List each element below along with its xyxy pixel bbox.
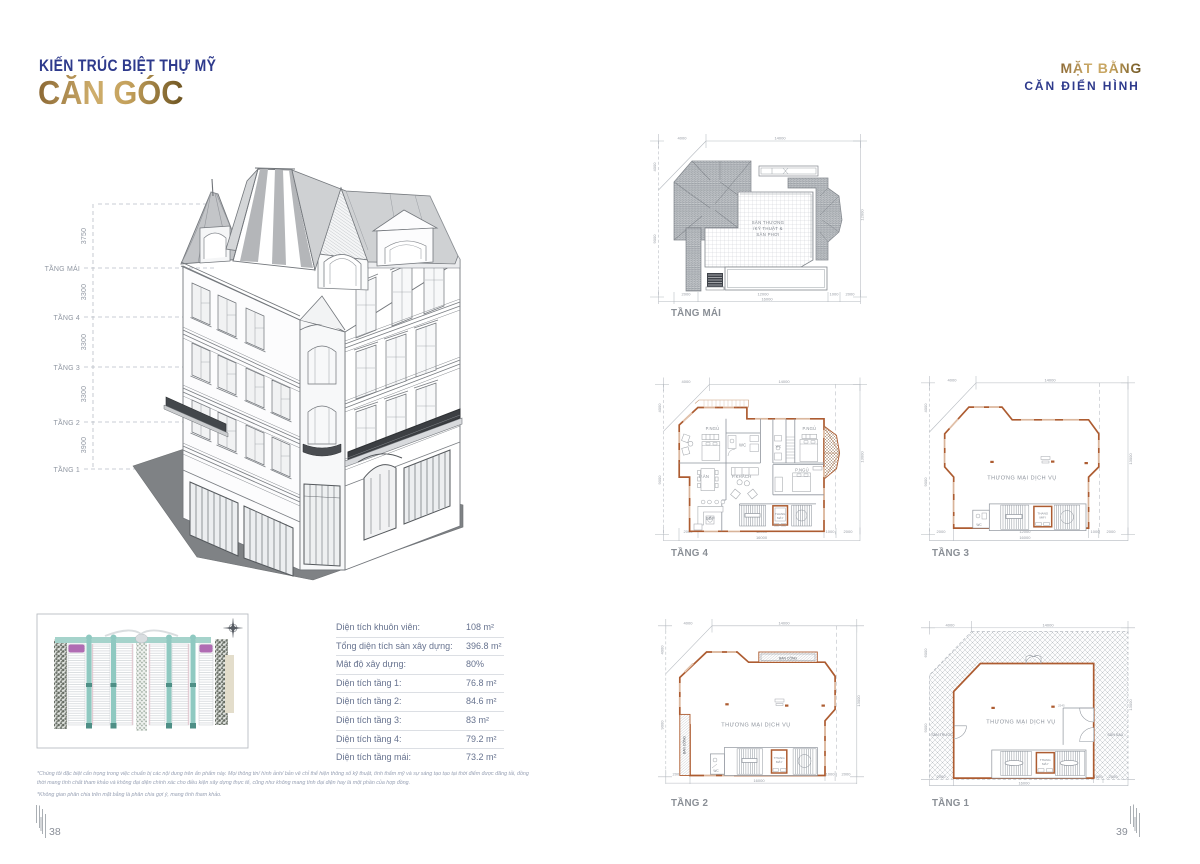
svg-text:2000: 2000 xyxy=(1107,529,1117,534)
svg-text:2000: 2000 xyxy=(844,529,854,534)
svg-text:9000: 9000 xyxy=(923,477,928,487)
svg-text:16000: 16000 xyxy=(753,778,765,783)
svg-text:2000: 2000 xyxy=(1109,774,1119,779)
svg-text:2000: 2000 xyxy=(842,772,852,777)
svg-text:4000: 4000 xyxy=(657,403,662,413)
svg-text:SÂN THƯỢNG: SÂN THƯỢNG xyxy=(752,220,785,225)
svg-text:MÁY: MÁY xyxy=(777,516,784,520)
svg-text:4000: 4000 xyxy=(684,620,694,625)
svg-text:9000: 9000 xyxy=(923,723,928,733)
svg-text:TẦNG 3: TẦNG 3 xyxy=(54,362,80,372)
svg-text:THƯƠNG MẠI DỊCH VỤ: THƯƠNG MẠI DỊCH VỤ xyxy=(721,723,790,729)
svg-text:1000: 1000 xyxy=(826,529,836,534)
svg-text:16000: 16000 xyxy=(761,297,773,302)
svg-text:2545: 2545 xyxy=(1058,704,1065,708)
svg-text:9000: 9000 xyxy=(657,475,662,485)
svg-text:P.NGỦ: P.NGỦ xyxy=(795,468,809,473)
svg-text:P.NGỦ: P.NGỦ xyxy=(706,426,720,431)
svg-text:14000: 14000 xyxy=(774,136,786,141)
svg-text:1000: 1000 xyxy=(1094,774,1104,779)
svg-text:WC: WC xyxy=(713,769,719,773)
svg-text:6000: 6000 xyxy=(923,648,928,658)
svg-text:2000: 2000 xyxy=(937,529,947,534)
svg-text:14000: 14000 xyxy=(778,620,790,625)
svg-text:WC: WC xyxy=(976,523,982,527)
svg-text:2000: 2000 xyxy=(682,292,692,297)
svg-text:THƯƠNG MẠI DỊCH VỤ: THƯƠNG MẠI DỊCH VỤ xyxy=(986,720,1055,726)
svg-text:1000: 1000 xyxy=(826,772,836,777)
svg-text:4000: 4000 xyxy=(682,379,692,384)
svg-text:1000: 1000 xyxy=(830,292,840,297)
svg-text:13000: 13000 xyxy=(1128,453,1133,465)
svg-text:4000: 4000 xyxy=(946,622,956,627)
svg-text:THƯƠNG MẠI DỊCH VỤ: THƯƠNG MẠI DỊCH VỤ xyxy=(987,476,1056,482)
svg-text:3300: 3300 xyxy=(81,386,88,402)
svg-text:4000: 4000 xyxy=(652,162,657,172)
svg-text:TẦNG 1: TẦNG 1 xyxy=(54,464,80,474)
svg-text:4000: 4000 xyxy=(678,136,688,141)
svg-text:1000: 1000 xyxy=(1091,529,1101,534)
svg-text:16000: 16000 xyxy=(756,535,768,540)
svg-text:3300: 3300 xyxy=(81,334,88,350)
svg-text:14000: 14000 xyxy=(1044,377,1056,382)
svg-text:SÂN SAU: SÂN SAU xyxy=(1107,733,1123,737)
svg-text:12000: 12000 xyxy=(860,209,865,221)
svg-text:BAN CÔNG: BAN CÔNG xyxy=(779,655,797,660)
svg-text:16000: 16000 xyxy=(1019,535,1031,540)
svg-text:TẦNG 4: TẦNG 4 xyxy=(54,312,80,322)
svg-text:SÂN TRƯỚC: SÂN TRƯỚC xyxy=(931,732,953,737)
svg-text:3750: 3750 xyxy=(81,228,88,244)
svg-text:9000: 9000 xyxy=(659,720,664,730)
svg-text:P.KHÁCH: P.KHÁCH xyxy=(732,474,751,479)
svg-text:MÁY: MÁY xyxy=(1042,762,1049,766)
svg-text:P.ĂN: P.ĂN xyxy=(699,474,709,479)
svg-text:4000: 4000 xyxy=(948,377,958,382)
svg-text:13000: 13000 xyxy=(856,695,861,707)
svg-text:BAN CÔNG: BAN CÔNG xyxy=(682,736,687,754)
svg-text:2000: 2000 xyxy=(937,774,947,779)
svg-text:2000: 2000 xyxy=(846,292,856,297)
svg-text:BẾP: BẾP xyxy=(706,516,715,521)
svg-text:16000: 16000 xyxy=(1018,781,1030,786)
svg-text:4000: 4000 xyxy=(923,403,928,413)
svg-text:14000: 14000 xyxy=(778,379,790,384)
svg-text:MÁY: MÁY xyxy=(1039,516,1046,520)
svg-text:13000: 13000 xyxy=(1128,699,1133,711)
svg-text:MÁY: MÁY xyxy=(776,760,783,764)
svg-text:9000: 9000 xyxy=(652,234,657,244)
svg-text:13000: 13000 xyxy=(860,451,865,463)
svg-text:4000: 4000 xyxy=(659,645,664,655)
svg-text:TẦNG 2: TẦNG 2 xyxy=(54,417,80,427)
svg-text:P.NGỦ: P.NGỦ xyxy=(803,426,817,431)
svg-text:WC: WC xyxy=(776,445,782,449)
svg-text:14000: 14000 xyxy=(1042,622,1054,627)
svg-text:3900: 3900 xyxy=(81,437,88,453)
svg-text:WC: WC xyxy=(739,443,746,448)
svg-text:TẦNG MÁI: TẦNG MÁI xyxy=(45,263,80,273)
svg-text:SÂN PHƠI: SÂN PHƠI xyxy=(756,232,779,237)
svg-text:3300: 3300 xyxy=(81,284,88,300)
svg-text:/KỸ THUẬT &: /KỸ THUẬT & xyxy=(753,226,783,231)
